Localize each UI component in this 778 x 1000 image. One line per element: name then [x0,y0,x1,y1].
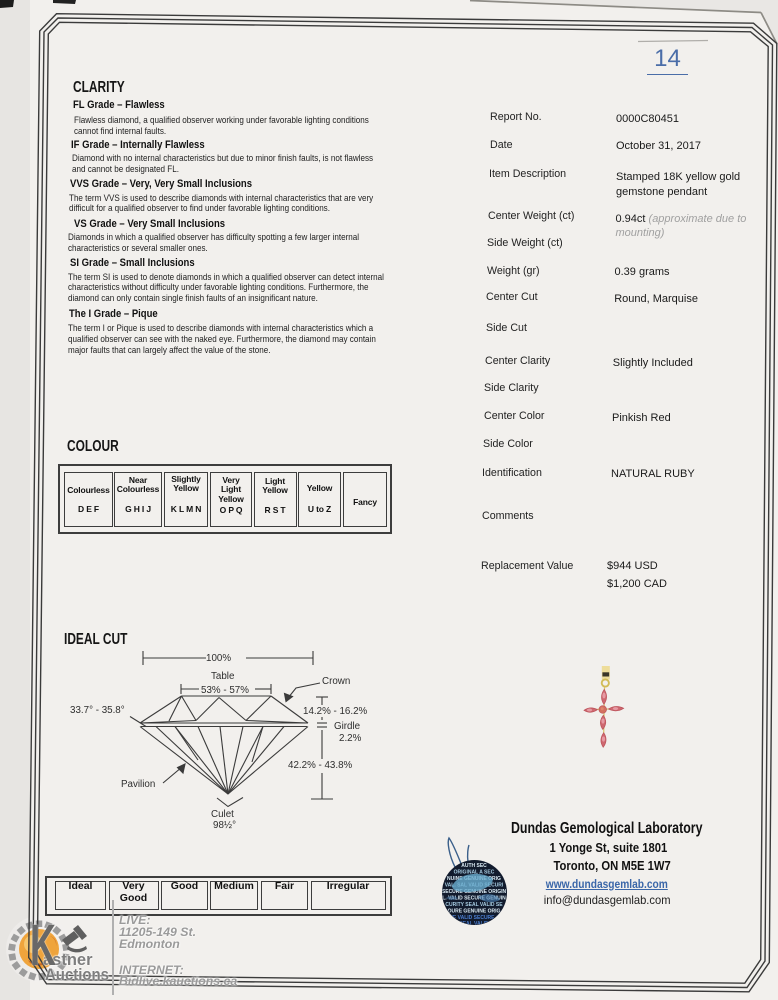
svg-text:SEAL VALID: SEAL VALID [459,921,489,927]
svg-text:OURE GENUINE ORIG: OURE GENUINE ORIG [448,909,501,915]
